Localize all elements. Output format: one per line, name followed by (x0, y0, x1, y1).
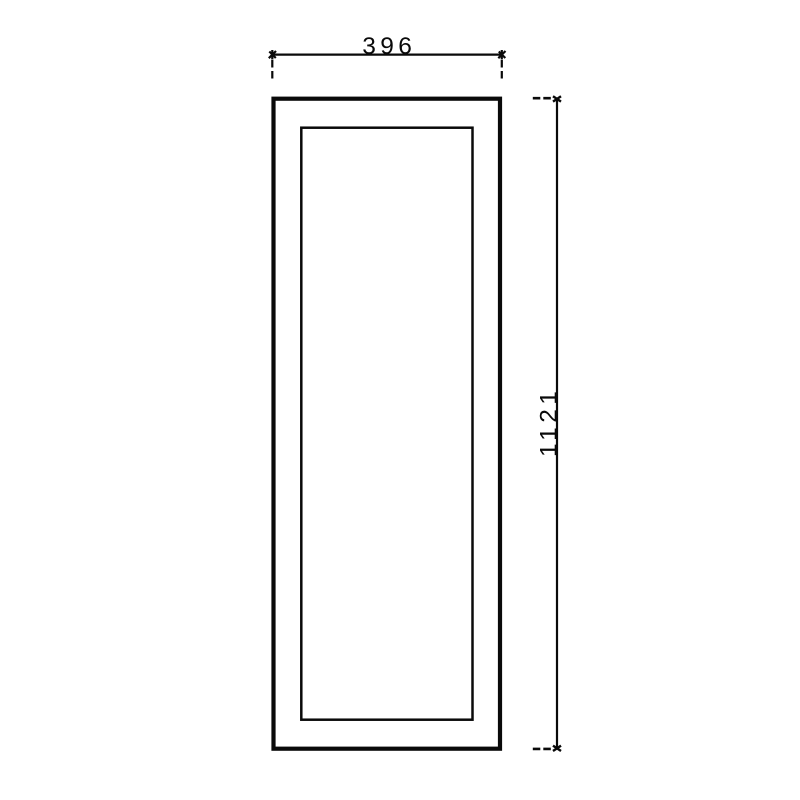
svg-text:1121: 1121 (535, 387, 562, 457)
svg-text:396: 396 (362, 33, 416, 60)
